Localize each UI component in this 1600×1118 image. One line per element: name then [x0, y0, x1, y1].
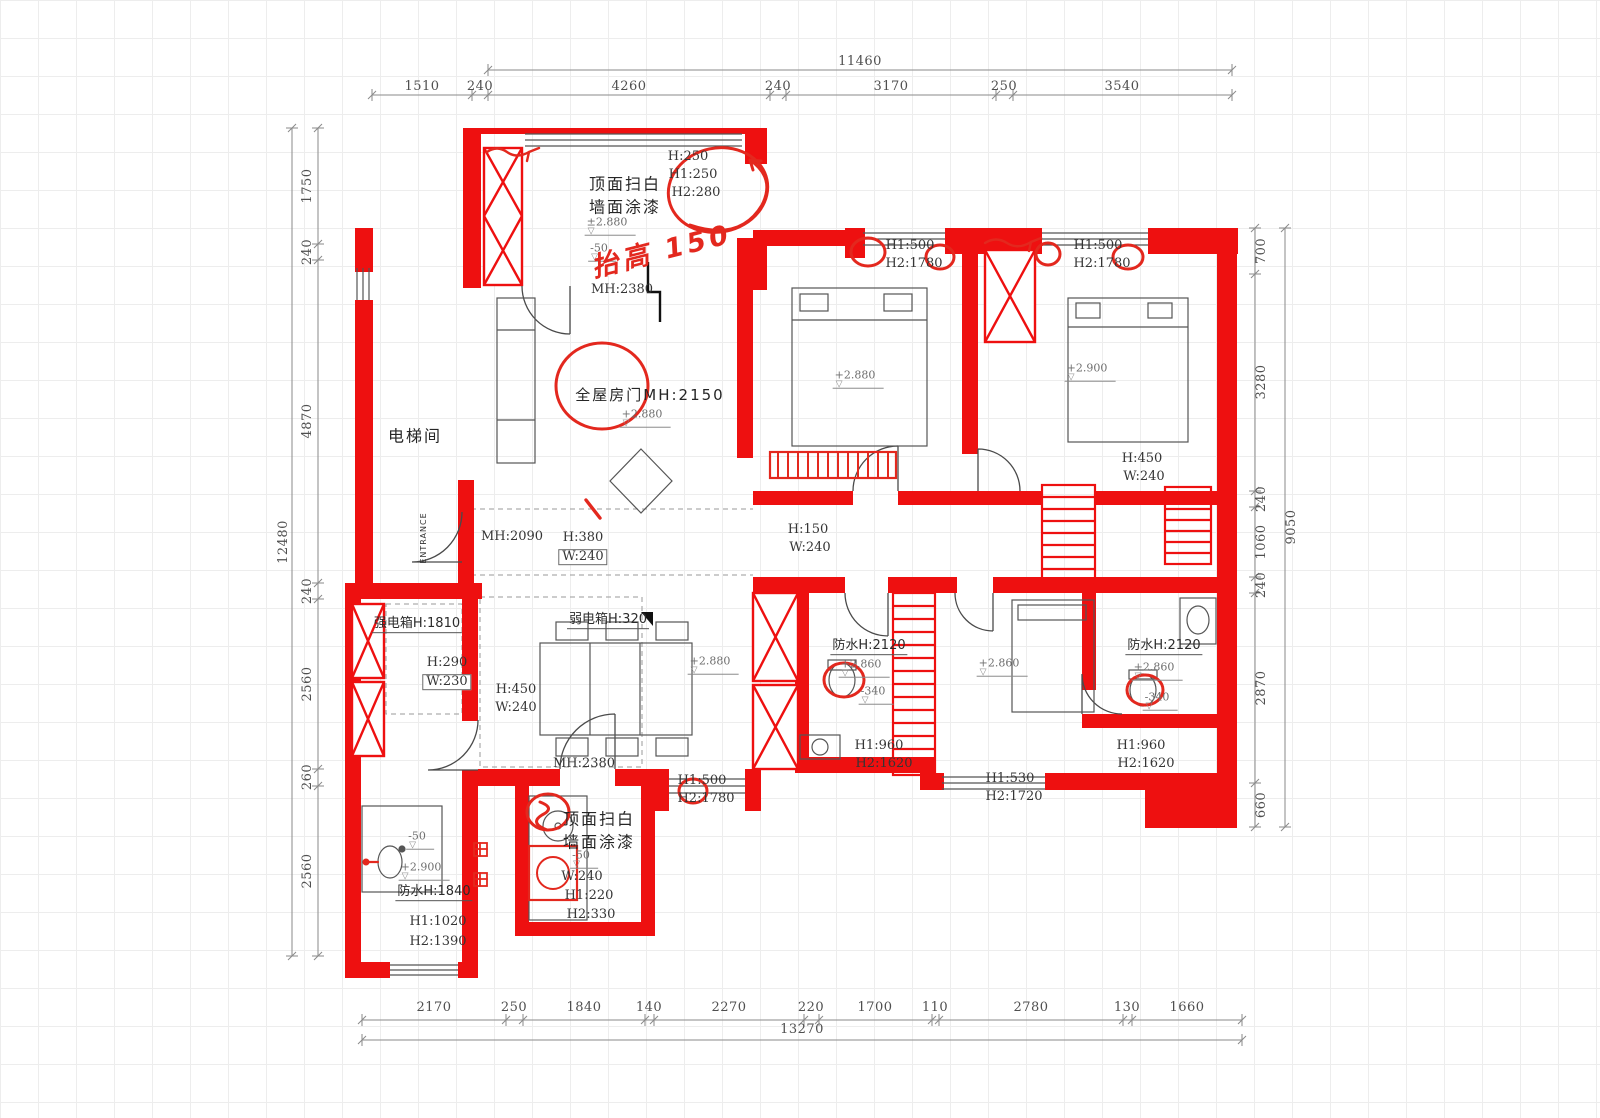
dim-bot-seg1: 250 [501, 1001, 527, 1015]
whole-house-door-note: 全屋房门MH:2150 [575, 388, 724, 404]
dim-left-seg1: 240 [301, 239, 315, 265]
dim-bot-seg8: 2780 [1013, 1001, 1048, 1015]
dim-right-seg3: 1060 [1255, 524, 1269, 559]
waterproof-right-note: 防水H:2120 [1125, 639, 1202, 655]
dim-bot-seg2: 1840 [566, 1001, 601, 1015]
level-bed1-p2880: +2.880 [833, 370, 884, 389]
dim-bot-seg0: 2170 [416, 1001, 451, 1015]
win-bath-bottom-h2: H2:1390 [409, 935, 466, 949]
dim-top-seg4: 3170 [873, 80, 908, 94]
waterproof-mid-note: 防水H:2120 [830, 639, 907, 655]
strong-box-note: 强电箱H:1810 [372, 617, 462, 633]
win-bed3-h1: H1:530 [986, 772, 1035, 786]
win-bed1-h1: H1:500 [886, 239, 935, 253]
level-bed3-p2860: +2.860 [977, 658, 1028, 677]
level-right-m340: -340 [1143, 692, 1178, 711]
paint-note-top-line2: 墙面涂漆 [589, 200, 661, 217]
dim-right-overall: 9050 [1285, 509, 1299, 544]
paint-note-bottom-line1: 顶面扫白 [563, 812, 635, 829]
win-bath-mid-h1: H1:960 [855, 739, 904, 753]
pass-dining-h: H:450 [496, 683, 537, 697]
dim-left-overall: 12480 [277, 520, 291, 564]
floorplan-drawing [0, 0, 1600, 1118]
dim-left-seg3: 240 [301, 578, 315, 604]
weak-box-note: 弱电箱H:320 [567, 613, 649, 629]
level-hall-p2880: +2.880 [688, 656, 739, 675]
win-balcony-h1: H1:500 [678, 774, 727, 788]
door-top-mh: MH:2380 [591, 283, 653, 297]
dim-right-seg5: 2870 [1255, 670, 1269, 705]
floorplan-canvas: 11460 1510 240 4260 240 3170 250 3540 21… [0, 0, 1600, 1118]
dim-bot-seg6: 1700 [857, 1001, 892, 1015]
level-mid-m340: -340 [859, 686, 894, 705]
pass-right-h: H:450 [1122, 452, 1163, 466]
win-balcony-h2: H2:1780 [677, 792, 734, 806]
dim-bot-overall: 13270 [780, 1023, 824, 1037]
dim-top-seg1: 240 [467, 80, 493, 94]
dim-top-seg5: 250 [991, 80, 1017, 94]
waterproof-bottom-note: 防水H:1840 [395, 885, 472, 901]
win-bed2-h1: H1:500 [1074, 239, 1123, 253]
win-kitchen-w: W:240 [561, 870, 602, 884]
win-top-h2: H2:280 [672, 186, 721, 200]
niche-h: H:290 [427, 656, 468, 670]
pass-corridor-w: W:240 [789, 541, 830, 555]
win-bed2-h2: H2:1780 [1073, 257, 1130, 271]
win-bed3-h2: H2:1720 [985, 790, 1042, 804]
dim-bot-seg7: 110 [922, 1001, 948, 1015]
dim-left-seg6: 2560 [301, 853, 315, 888]
dim-top-seg6: 3540 [1104, 80, 1139, 94]
door-mid-mh: MH:2090 [481, 530, 543, 544]
dim-left-seg0: 1750 [301, 168, 315, 203]
win-bath-right-h2: H2:1620 [1117, 757, 1174, 771]
ladder-symbols [893, 485, 1211, 775]
pass-living-w: W:240 [558, 549, 607, 565]
win-bath-bottom-h1: H1:1020 [409, 915, 466, 929]
entrance-label: ENTRANCE [420, 512, 428, 563]
dashed-guides [386, 509, 753, 767]
dim-bot-seg4: 2270 [711, 1001, 746, 1015]
pass-corridor-h: H:150 [788, 523, 829, 537]
dim-left-seg5: 260 [301, 764, 315, 790]
level-top-pm2880: ±2.880 [585, 217, 636, 236]
win-bed1-h2: H2:1780 [885, 257, 942, 271]
win-top-h: H:250 [668, 150, 709, 164]
dim-top-seg2: 4260 [611, 80, 646, 94]
level-bath-bottom-m50: -50 [406, 831, 434, 850]
pass-dining-w: W:240 [495, 701, 536, 715]
level-right-p2860: +2.860 [1132, 662, 1183, 681]
pass-right-w: W:240 [1123, 470, 1164, 484]
dim-left-seg4: 2560 [301, 666, 315, 701]
level-kitchen-m50: -50 [570, 850, 598, 869]
dim-top-seg0: 1510 [404, 80, 439, 94]
dim-bot-seg10: 1660 [1169, 1001, 1204, 1015]
pass-living-h: H:380 [563, 531, 604, 545]
niche-w: W:230 [422, 674, 471, 690]
dim-bot-seg3: 140 [636, 1001, 662, 1015]
dim-right-seg2: 240 [1255, 486, 1269, 512]
dim-bot-seg5: 220 [798, 1001, 824, 1015]
dim-top-seg3: 240 [765, 80, 791, 94]
dim-right-seg1: 3280 [1255, 364, 1269, 399]
dim-top-overall: 11460 [838, 55, 882, 69]
room-label-elevator: 电梯间 [388, 429, 442, 446]
dim-right-seg4: 240 [1255, 572, 1269, 598]
dim-right-seg6: 660 [1255, 792, 1269, 818]
win-bath-right-h1: H1:960 [1117, 739, 1166, 753]
level-mid-p2860: +2.860 [839, 659, 890, 678]
paint-note-top-line1: 顶面扫白 [589, 177, 661, 194]
dim-right-seg0: 700 [1255, 238, 1269, 264]
door-bottom-mh: MH:2380 [553, 757, 615, 771]
level-bed2-p2900: +2.900 [1065, 363, 1116, 382]
win-top-h1: H1:250 [669, 168, 718, 182]
level-bath-bottom-p2900: +2.900 [399, 862, 450, 881]
level-door-p2880: +2.880 [620, 409, 671, 428]
win-bath-mid-h2: H2:1620 [855, 757, 912, 771]
win-kitchen-h2: H2:330 [567, 908, 616, 922]
win-kitchen-h1: H1:220 [565, 889, 614, 903]
dim-bot-seg9: 130 [1114, 1001, 1140, 1015]
dim-left-seg2: 4870 [301, 403, 315, 438]
